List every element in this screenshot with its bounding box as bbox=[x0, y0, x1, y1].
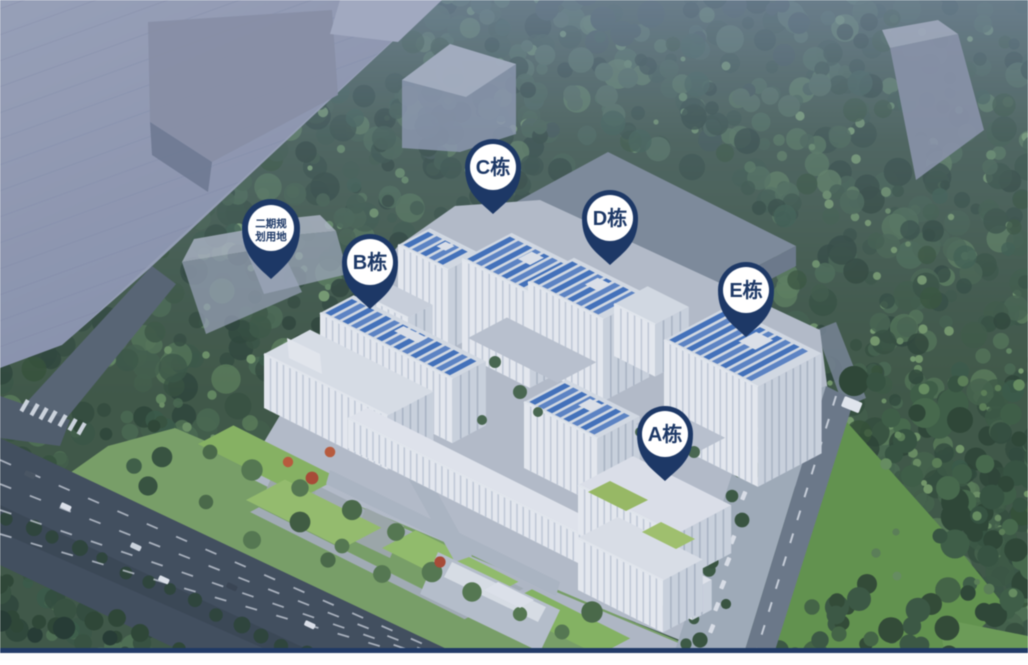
svg-text:A栋: A栋 bbox=[648, 422, 682, 446]
svg-text:D栋: D栋 bbox=[593, 206, 627, 230]
svg-text:划用地: 划用地 bbox=[255, 230, 287, 243]
svg-text:二期规: 二期规 bbox=[255, 217, 287, 230]
svg-text:C栋: C栋 bbox=[476, 155, 510, 179]
svg-text:E栋: E栋 bbox=[729, 278, 762, 302]
svg-text:B栋: B栋 bbox=[353, 250, 387, 274]
